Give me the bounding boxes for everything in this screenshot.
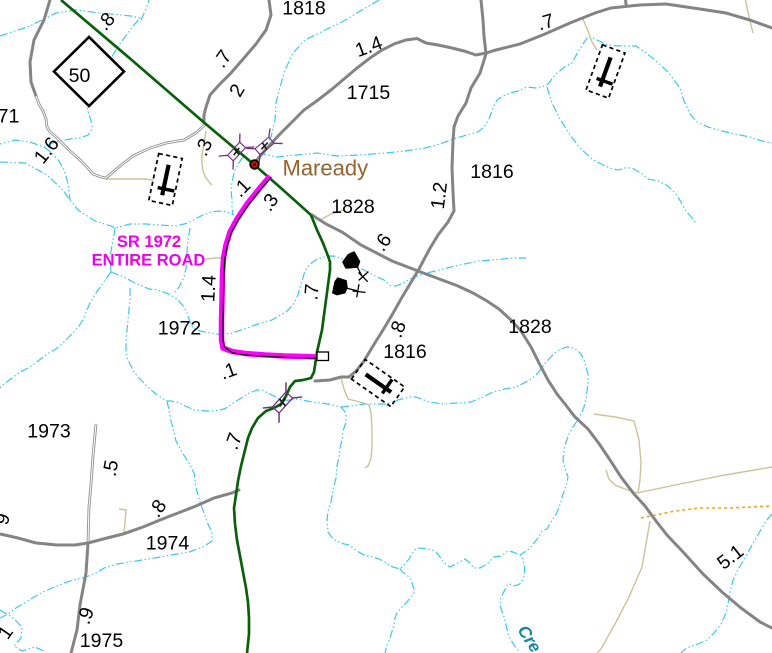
svg-text:50: 50 xyxy=(69,65,91,87)
svg-text:71: 71 xyxy=(0,106,19,128)
svg-text:1.4: 1.4 xyxy=(197,274,220,302)
svg-text:SR 1972: SR 1972 xyxy=(117,233,181,251)
svg-text:Maready: Maready xyxy=(283,156,369,181)
svg-text:1816: 1816 xyxy=(470,161,513,183)
svg-text:1.2: 1.2 xyxy=(427,181,452,211)
svg-text:1973: 1973 xyxy=(27,421,70,443)
svg-text:1828: 1828 xyxy=(508,316,551,338)
svg-text:1974: 1974 xyxy=(146,533,190,555)
svg-text:1816: 1816 xyxy=(383,341,426,363)
svg-text:1715: 1715 xyxy=(347,82,391,104)
svg-text:.7: .7 xyxy=(300,283,323,301)
svg-text:1972: 1972 xyxy=(158,318,201,340)
svg-text:1828: 1828 xyxy=(331,196,374,218)
svg-text:1818: 1818 xyxy=(282,0,325,20)
svg-text:1975: 1975 xyxy=(80,630,124,652)
svg-text:ENTIRE ROAD: ENTIRE ROAD xyxy=(92,252,206,270)
